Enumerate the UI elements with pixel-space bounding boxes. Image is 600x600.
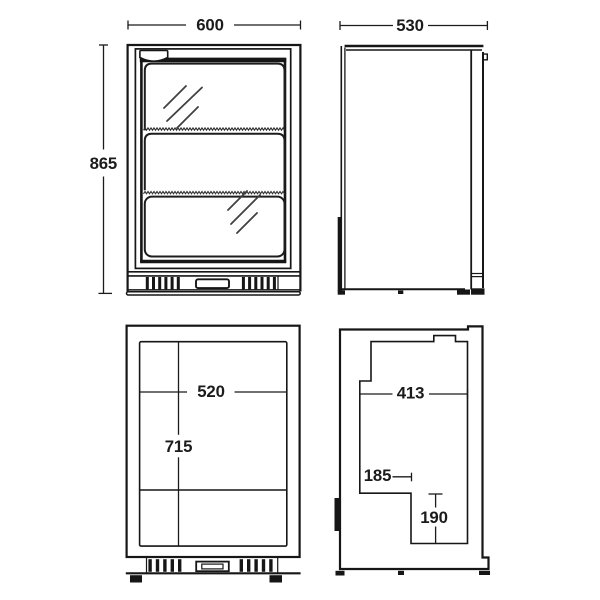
svg-text:190: 190 xyxy=(420,508,447,527)
svg-text:600: 600 xyxy=(196,16,223,35)
svg-text:865: 865 xyxy=(90,154,117,173)
svg-text:520: 520 xyxy=(197,382,224,401)
svg-text:413: 413 xyxy=(397,383,424,402)
svg-text:530: 530 xyxy=(396,16,423,35)
svg-text:715: 715 xyxy=(165,437,192,456)
svg-text:185: 185 xyxy=(364,466,391,485)
